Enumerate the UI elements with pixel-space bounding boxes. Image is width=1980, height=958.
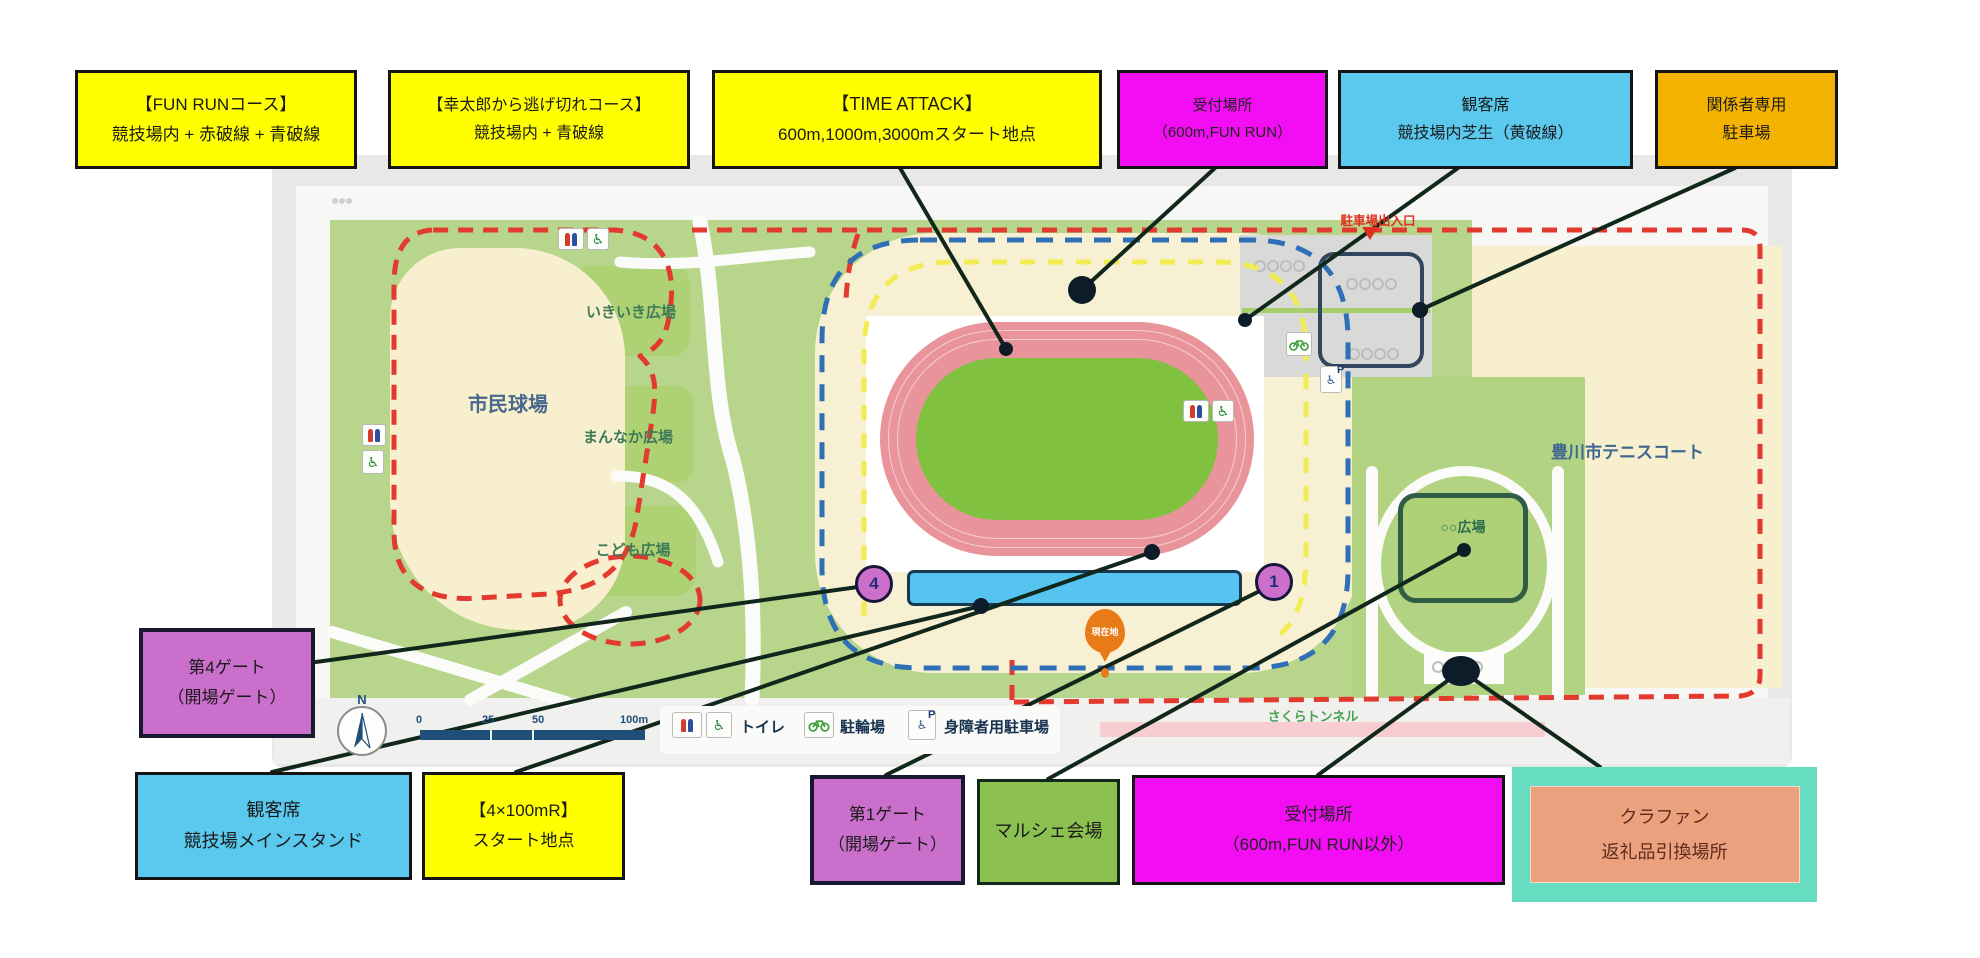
label-line: 受付場所	[1192, 93, 1252, 119]
label-line: 【FUN RUNコース】	[136, 90, 297, 120]
compass-icon	[337, 706, 387, 756]
label-fun-run-course: 【FUN RUNコース】 競技場内 + 赤破線 + 青破線	[75, 70, 357, 169]
area-label-ikiiki: いきいき広場	[566, 301, 696, 322]
label-crowdfunding: クラファン 返礼品引換場所	[1512, 767, 1817, 902]
gate1-marker: 1	[1255, 563, 1293, 601]
label-time-attack: 【TIME ATTACK】 600m,1000m,3000mスタート地点	[712, 70, 1102, 169]
label-line: 観客席	[1461, 92, 1509, 120]
label-lawn-seats: 観客席 競技場内芝生（黄破線）	[1338, 70, 1633, 169]
wheelchair-icon: ♿	[1212, 400, 1234, 422]
wheelchair-icon: ♿	[362, 450, 384, 474]
gate4-marker: 4	[855, 565, 893, 603]
label-escape-course: 【幸太郎から逃げ切れコース】 競技場内 + 青破線	[388, 70, 690, 169]
scale-tick-50: 50	[532, 714, 544, 726]
label-line: 観客席	[247, 795, 301, 827]
parking-circles	[1348, 348, 1400, 360]
area-label-tennis: 豊川市テニスコート	[1475, 438, 1780, 463]
restroom-icon	[1183, 400, 1209, 422]
label-line: （開場ゲート）	[168, 683, 287, 713]
current-location-marker: 現在地	[1085, 609, 1125, 653]
athletics-track	[880, 322, 1254, 556]
venue-map-page: 市民球場 いきいき広場 まんなか広場 こども広場 豊川市テニスコート ○○広場 …	[0, 0, 1980, 958]
parking-exit-pin	[1362, 227, 1378, 240]
label-line: 競技場内芝生（黄破線）	[1397, 120, 1573, 148]
label-line: 競技場内 + 赤破線 + 青破線	[112, 120, 321, 150]
area-label-kodomo: こども広場	[568, 539, 698, 560]
legend-accessible-label: 身障者用駐車場	[944, 716, 1049, 737]
label-marche: マルシェ会場	[977, 779, 1120, 885]
compass-n-label: N	[352, 692, 372, 707]
gate1-number: 1	[1269, 572, 1278, 592]
label-line: 第1ゲート	[849, 800, 926, 830]
current-location-dot	[1101, 668, 1109, 678]
label-line: 関係者専用	[1706, 92, 1786, 120]
main-stand	[907, 570, 1242, 606]
bicycle-icon	[804, 712, 834, 738]
label-line: 【幸太郎から逃げ切れコース】	[427, 92, 650, 120]
label-reception-other: 受付場所 （600m,FUN RUN以外）	[1132, 775, 1505, 885]
accessible-parking-icon: ♿P	[908, 710, 936, 740]
parking-exit-label: 駐車場出入口	[1330, 210, 1426, 229]
label-line: 第4ゲート	[188, 653, 265, 683]
label-reception-600m: 受付場所 （600m,FUN RUN）	[1117, 70, 1328, 169]
scale-tick-25: 25	[482, 714, 494, 726]
area-label-baseball: 市民球場	[408, 388, 608, 417]
label-relay-start: 【4×100mR】 スタート地点	[422, 772, 625, 880]
legend-toilet-label: トイレ	[740, 716, 785, 737]
area-label-mannaka: まんなか広場	[560, 426, 696, 447]
label-line: 競技場メインスタンド	[184, 826, 364, 858]
map-edge-dots	[332, 198, 353, 204]
wheelchair-icon: ♿	[587, 228, 609, 250]
label-line: 駐車場	[1722, 120, 1770, 148]
label-staff-parking: 関係者専用 駐車場	[1655, 70, 1838, 169]
scale-tick-0: 0	[416, 714, 422, 726]
label-line: 【TIME ATTACK】	[831, 89, 982, 121]
label-line: クラファン	[1620, 800, 1710, 834]
accessible-parking-icon: ♿P	[1320, 366, 1342, 393]
label-line: 【4×100mR】	[469, 796, 577, 826]
track-infield	[916, 358, 1218, 520]
parking-circles	[1254, 260, 1306, 272]
label-main-stand: 観客席 競技場メインスタンド	[135, 772, 412, 880]
area-label-sakura-tunnel: さくらトンネル	[1258, 706, 1368, 725]
parking-circles	[1346, 278, 1398, 290]
crowdfunding-inner: クラファン 返礼品引換場所	[1530, 786, 1800, 883]
plaza-square	[1398, 493, 1528, 603]
gate4-number: 4	[869, 574, 878, 594]
label-line: （600m,FUN RUN以外）	[1223, 830, 1415, 860]
plaza-sign-circles	[1432, 661, 1484, 673]
restroom-icon	[362, 424, 386, 446]
label-gate1: 第1ゲート （開場ゲート）	[810, 775, 965, 885]
label-line: マルシェ会場	[995, 816, 1103, 848]
restroom-icon	[672, 712, 702, 738]
label-gate4: 第4ゲート （開場ゲート）	[139, 628, 315, 738]
bicycle-icon	[1286, 332, 1312, 356]
label-line: 600m,1000m,3000mスタート地点	[778, 120, 1036, 150]
label-line: 返礼品引換場所	[1602, 835, 1728, 869]
label-line: （600m,FUN RUN）	[1153, 120, 1292, 146]
current-location-text: 現在地	[1091, 625, 1118, 638]
area-label-plaza: ○○広場	[1400, 517, 1526, 537]
restroom-icon	[558, 228, 584, 250]
scale-bar	[420, 730, 645, 740]
scale-tick-100: 100m	[620, 714, 648, 726]
wheelchair-icon: ♿	[706, 712, 732, 738]
legend-bicycle-label: 駐輪場	[840, 716, 885, 737]
label-line: スタート地点	[473, 826, 575, 856]
label-line: （開場ゲート）	[828, 830, 947, 860]
label-line: 競技場内 + 青破線	[474, 120, 604, 148]
label-line: 受付場所	[1285, 800, 1353, 830]
